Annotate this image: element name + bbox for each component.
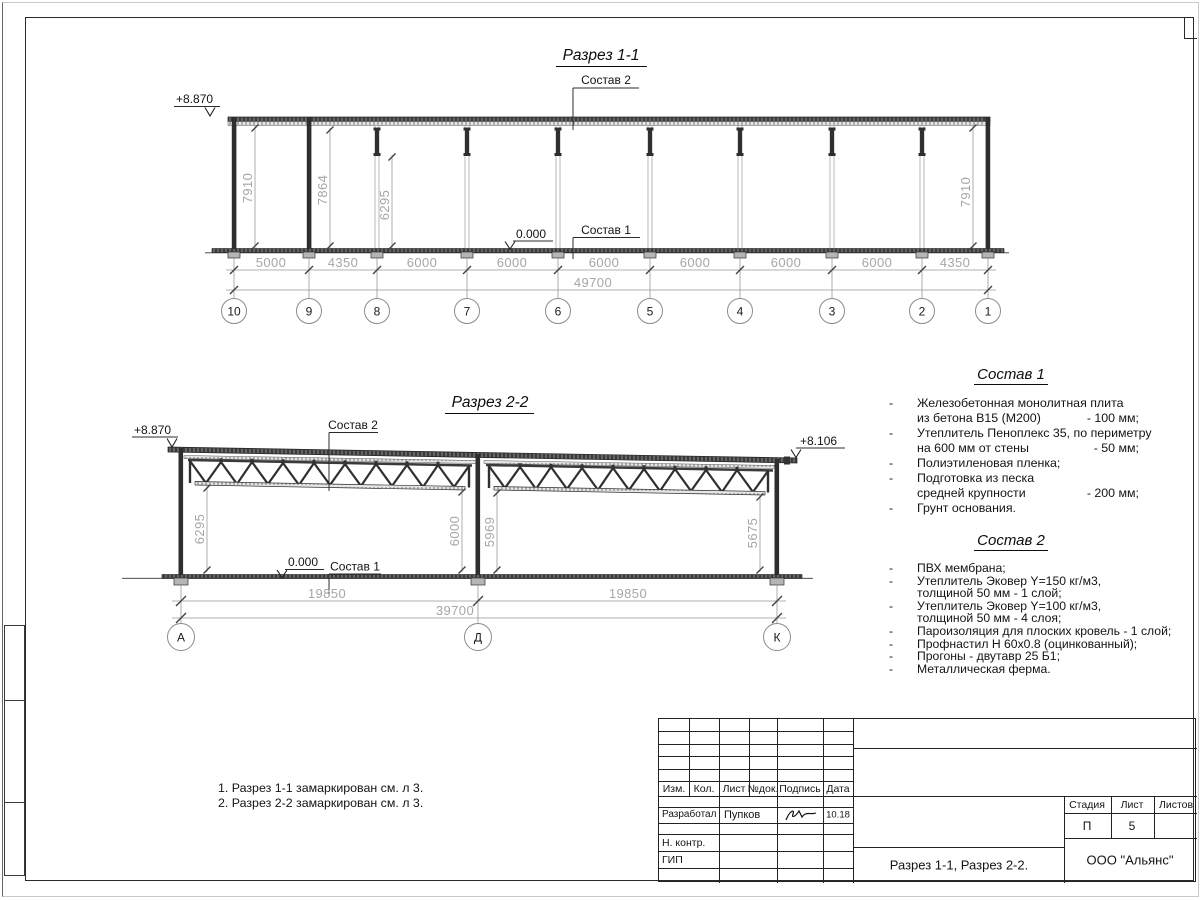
tb-date: 10.18 [826, 810, 850, 821]
tb-stage-header: Стадия [1069, 799, 1105, 811]
tb-company: ООО "Альянс" [1087, 853, 1174, 868]
height-dim: 5675 [745, 518, 760, 549]
sostav1-item: средней крупности- 200 мм; [875, 486, 1147, 501]
grid-bubbles: А Д К [168, 624, 791, 651]
signature [783, 808, 819, 823]
height-dim: 7864 [315, 175, 330, 206]
column-axis-d [476, 454, 481, 578]
tb-sheet-header: Лист [1121, 799, 1144, 811]
dimension-chain: 19850 19850 39700 [172, 585, 786, 624]
zero-level-label: 0.000 [516, 227, 546, 241]
elevation-arrow-icon [167, 439, 177, 448]
sostav1-item: -Подготовка из песка [875, 471, 1147, 486]
elevation-label: +8.106 [800, 434, 837, 448]
dim-label: 6000 [680, 255, 711, 270]
tb-sheet-value: 5 [1129, 819, 1136, 833]
tb-role-developer: Разработал [662, 809, 716, 820]
dim-label: 6000 [589, 255, 620, 270]
elevation-arrow-icon [791, 450, 801, 458]
sostav2-callout: Состав 2 [581, 73, 631, 87]
dim-label: 6000 [862, 255, 893, 270]
sostav1-panel-title: Состав 1 [875, 366, 1147, 383]
sostav2-panel-title: Состав 2 [875, 532, 1147, 549]
zero-level-label: 0.000 [288, 555, 318, 569]
column-axis-a [179, 448, 184, 578]
grid-bubble-label: А [177, 631, 185, 645]
sostav1-item: -Грунт основания. [875, 501, 1147, 516]
note-line: 2. Разрез 2-2 замаркирован см. л 3. [218, 796, 423, 811]
elevation-label: +8.870 [176, 92, 213, 106]
sostav2-callout: Состав 2 [328, 418, 378, 432]
grid-bubble-label: 1 [985, 305, 992, 319]
grid-bubble-label: 9 [306, 305, 313, 319]
note-line: 1. Разрез 1-1 замаркирован см. л 3. [218, 781, 423, 796]
section2-title: Разрез 2-2 [452, 394, 529, 411]
sostav1-item: -Железобетонная монолитная плита [875, 396, 1147, 411]
sostav1-item: -Полиэтиленовая пленка; [875, 456, 1147, 471]
sostav2-panel-title-text: Состав 2 [974, 532, 1048, 551]
elevation-arrow-icon [205, 108, 215, 117]
wall-axis-9 [307, 117, 312, 253]
dim-label: 6000 [497, 255, 528, 270]
height-dim: 6295 [377, 190, 392, 221]
dim-label: 6000 [771, 255, 802, 270]
elevation-label: +8.870 [134, 423, 171, 437]
sostav1-panel-title-text: Состав 1 [974, 366, 1048, 385]
tb-col-ndok: №док. [748, 783, 779, 795]
column-braces [374, 128, 926, 157]
tb-role-gip: ГИП [662, 854, 683, 866]
dim-label: 5000 [256, 255, 287, 270]
tb-col-kol: Кол. [694, 783, 715, 795]
height-dim: 5969 [482, 517, 497, 548]
dim-label: 19850 [609, 586, 647, 601]
dim-label: 4350 [328, 255, 359, 270]
wall-axis-1 [986, 117, 991, 253]
dim-label: 6000 [407, 255, 438, 270]
footings [174, 578, 784, 585]
grid-bubble-label: 5 [647, 305, 654, 319]
section1-title: Разрез 1-1 [563, 47, 640, 64]
sostav1-item: из бетона В15 (М200)- 100 мм; [875, 411, 1147, 426]
steel-truss-right [486, 463, 773, 495]
height-dim: 7910 [240, 173, 255, 204]
tb-col-izm: Изм. [663, 783, 686, 795]
height-dim: 7910 [958, 177, 973, 208]
grid-bubble-label: 10 [227, 305, 241, 319]
sostav2-panel: Состав 2 -ПВХ мембрана; -Утеплитель Эков… [875, 532, 1147, 675]
tb-col-data: Дата [826, 783, 849, 795]
section2-drawing: Разрез 2-2 [122, 394, 845, 651]
steel-truss-left [188, 458, 472, 490]
grid-bubble-label: 6 [555, 305, 562, 319]
tb-col-podpis: Подпись [779, 783, 821, 795]
sostav1-callout: Состав 1 [581, 223, 631, 237]
sostav1-callout: Состав 1 [330, 560, 380, 574]
elevation-arrow-icon [505, 242, 515, 250]
tb-role-ncontrol: Н. контр. [662, 837, 705, 849]
section1-drawing: Разрез 1-1 [174, 47, 1009, 324]
grid-bubbles: 10 9 8 7 6 5 4 3 2 1 [222, 299, 1001, 324]
wall-axis-10 [232, 117, 237, 253]
height-dim: 6000 [447, 516, 462, 547]
sostav1-item: на 600 мм от стены- 50 мм; [875, 441, 1147, 456]
dimension-chain: 5000 4350 6000 6000 6000 6000 6000 6000 … [226, 255, 996, 298]
grid-bubble-label: К [774, 631, 781, 645]
title-block: Изм. Кол. Лист №док. Подпись Дата Разраб… [658, 718, 1196, 882]
tb-doc-title: Разрез 1-1, Разрез 2-2. [890, 858, 1028, 873]
sostav1-panel: Состав 1 -Железобетонная монолитная плит… [875, 366, 1147, 516]
dim-label: 4350 [940, 255, 971, 270]
grid-bubble-label: 4 [737, 305, 744, 319]
sostav2-item: -Металлическая ферма. [875, 663, 1147, 676]
column-axis-k [775, 459, 780, 578]
total-dim-label: 39700 [436, 603, 474, 618]
sostav1-item: -Утеплитель Пеноплекс 35, по периметру [875, 426, 1147, 441]
notes: 1. Разрез 1-1 замаркирован см. л 3. 2. Р… [218, 781, 423, 810]
tb-sheets-header: Листов [1159, 799, 1193, 811]
total-dim-label: 49700 [574, 275, 612, 290]
tb-developer-name: Пупков [724, 809, 760, 821]
grid-bubble-label: 7 [464, 305, 471, 319]
dim-label: 19850 [308, 586, 346, 601]
tb-stage-value: П [1083, 819, 1092, 833]
grid-bubble-label: 3 [829, 305, 836, 319]
tb-col-list: Лист [723, 783, 746, 795]
grid-bubble-label: 2 [919, 305, 926, 319]
floor-slab [212, 249, 1004, 253]
grid-bubble-label: Д [474, 631, 482, 645]
drawing-sheet: Разрез 1-1 [0, 0, 1200, 900]
height-dim: 6295 [192, 514, 207, 545]
grid-bubble-label: 8 [374, 305, 381, 319]
